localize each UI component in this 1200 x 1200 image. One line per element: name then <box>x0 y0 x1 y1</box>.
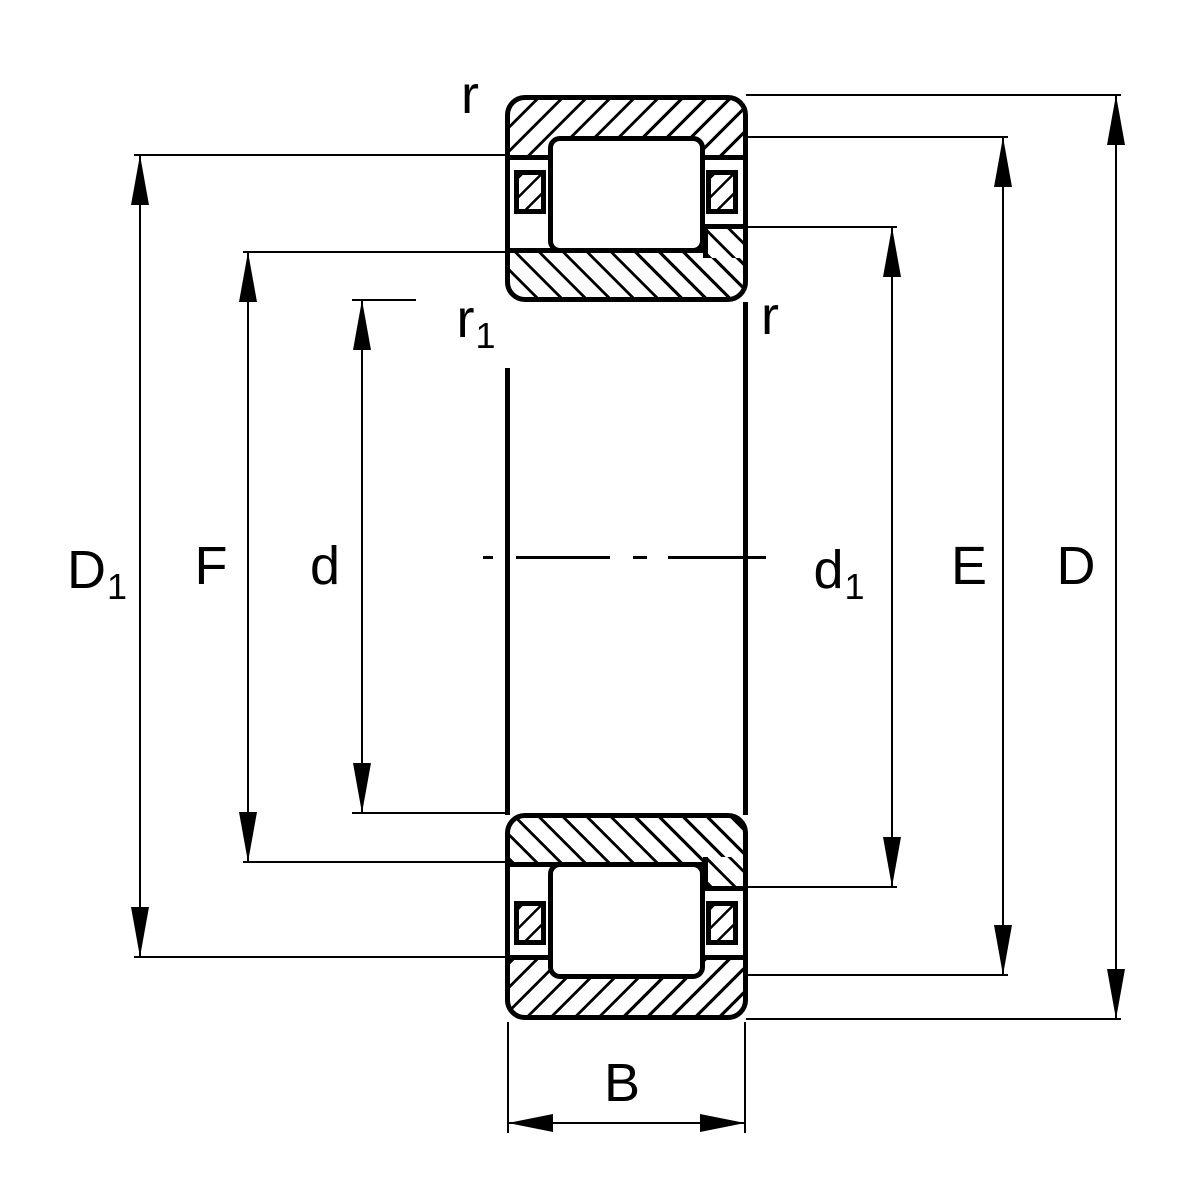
dim-arrow-d-bottom <box>353 763 371 813</box>
ext-line-E-top <box>746 136 1008 138</box>
dim-line-F <box>247 252 249 862</box>
dim-line-d <box>361 300 363 813</box>
ext-line-D1-bottom <box>134 956 507 958</box>
ext-line-d1-top <box>746 226 897 228</box>
ring-face-line-bottom-left <box>505 865 510 957</box>
radius-label-r-top: r <box>461 68 479 122</box>
ext-line-D-bottom <box>746 1018 1121 1020</box>
dim-arrow-D1-top <box>131 155 149 205</box>
ext-line-d1-bottom <box>746 886 897 888</box>
ring-face-line-bottom-right <box>743 889 748 957</box>
dim-arrow-B-left <box>508 1114 553 1132</box>
ext-line-E-bottom <box>746 974 1008 976</box>
dim-arrow-d1-top <box>883 227 901 277</box>
dim-arrow-F-bottom <box>239 812 257 862</box>
dim-arrow-D1-bottom <box>131 907 149 957</box>
dim-line-d1 <box>891 227 893 887</box>
dim-label-D1: D1 <box>67 543 127 597</box>
roller-top <box>548 136 705 253</box>
cage-section-bottom-left <box>514 901 546 945</box>
inner-ring-flange-bottom <box>703 857 748 891</box>
dim-arrow-D-top <box>1107 95 1125 145</box>
face-silhouette-line-right <box>743 302 748 815</box>
dim-arrow-D-bottom <box>1107 969 1125 1019</box>
ext-line-F-bottom <box>243 861 507 863</box>
dim-label-d: d <box>310 539 340 593</box>
dim-line-D <box>1115 95 1117 1019</box>
cage-section-bottom-right <box>706 901 738 945</box>
inner-ring-flange-top <box>703 224 748 258</box>
cage-section-top-left <box>514 170 546 214</box>
dim-arrow-B-right <box>700 1114 745 1132</box>
roller-bottom <box>548 862 705 979</box>
dim-arrow-d1-bottom <box>883 837 901 887</box>
bearing-technical-drawing: r r1 r D1 F d d1 E D B <box>0 0 1200 1200</box>
dim-arrow-d-top <box>353 300 371 350</box>
dim-arrow-F-top <box>239 252 257 302</box>
radius-label-r1-side: r1 <box>456 292 495 346</box>
dim-label-D: D <box>1057 539 1096 593</box>
ring-face-line-top-right <box>743 158 748 228</box>
dim-label-F: F <box>195 539 228 593</box>
ext-line-D1-top <box>134 154 507 156</box>
ring-face-line-top-left <box>505 158 510 253</box>
dim-line-D1 <box>139 155 141 957</box>
dim-label-B: B <box>604 1056 640 1110</box>
ext-line-D-top <box>746 94 1121 96</box>
dim-label-E: E <box>951 539 987 593</box>
dim-arrow-E-top <box>994 137 1012 187</box>
cage-section-top-right <box>706 170 738 214</box>
ext-line-F-top <box>243 251 507 253</box>
ext-line-d-bottom <box>352 812 507 814</box>
radius-label-r-side: r <box>761 289 779 343</box>
dim-arrow-E-bottom <box>994 925 1012 975</box>
dim-line-E <box>1002 137 1004 975</box>
dim-label-d1: d1 <box>813 543 864 597</box>
bore-silhouette-line-left <box>505 368 510 815</box>
